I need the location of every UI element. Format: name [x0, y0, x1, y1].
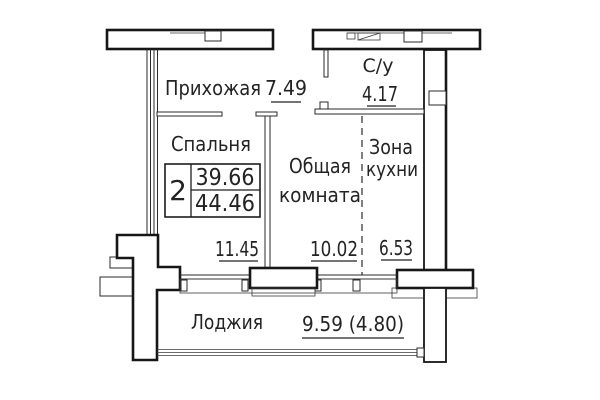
right-wall-lower	[424, 288, 446, 362]
loggia-window-mullion	[417, 348, 424, 357]
floor-plan-drawing: 2 39.66 44.46 Прихожая 7.49 С/у 4.17 Спа…	[0, 0, 600, 400]
room-area-hallway: 7.49	[265, 76, 307, 100]
right-wall-upper	[424, 50, 446, 270]
bathroom-bottom-wall	[315, 109, 424, 114]
bedroom-top-wall	[157, 112, 222, 116]
stamp-rooms-count: 2	[169, 174, 187, 207]
duct-box	[404, 31, 422, 42]
bathroom-left-wall	[324, 50, 328, 77]
vent-shaft-box	[205, 31, 221, 41]
stamp-table: 2 39.66 44.46	[165, 164, 260, 217]
room-label-bathroom: С/у	[363, 55, 394, 77]
balcony-door-block	[250, 268, 317, 288]
t-wall-cap	[256, 112, 277, 116]
window-band	[180, 268, 397, 296]
room-label-loggia: Лоджия	[191, 310, 263, 334]
room-area-living: 10.02	[310, 237, 358, 261]
room-label-kitchen-line1: Зона	[369, 135, 413, 159]
stamp-total-area: 44.46	[195, 191, 255, 217]
room-area-kitchen: 6.53	[379, 236, 413, 260]
window-mullion	[181, 280, 187, 291]
room-label-kitchen-line2: кухни	[366, 157, 418, 181]
left-wall-lines	[147, 49, 158, 235]
window-mullion	[242, 280, 248, 291]
stamp-living-area: 39.66	[196, 165, 255, 191]
room-area-bedroom: 11.45	[215, 237, 259, 261]
door-jamb	[320, 102, 328, 109]
room-label-hallway: Прихожая	[165, 76, 261, 100]
bottom-left-pier	[117, 235, 180, 360]
room-label-bedroom: Спальня	[171, 132, 251, 156]
bedroom-living-wall	[265, 116, 270, 268]
right-pier-crossbar	[397, 270, 473, 288]
loggia-window	[157, 348, 424, 357]
room-area-bathroom: 4.17	[362, 82, 398, 106]
window-mullion	[353, 280, 360, 291]
wall-niche-box	[429, 91, 446, 105]
room-area-loggia: 9.59 (4.80)	[302, 312, 404, 336]
floor-plan: 2 39.66 44.46 Прихожая 7.49 С/у 4.17 Спа…	[0, 0, 600, 400]
left-step-lower	[100, 277, 133, 296]
room-label-living-line1: Общая	[289, 154, 351, 178]
room-label-living-line2: комната	[279, 183, 361, 207]
